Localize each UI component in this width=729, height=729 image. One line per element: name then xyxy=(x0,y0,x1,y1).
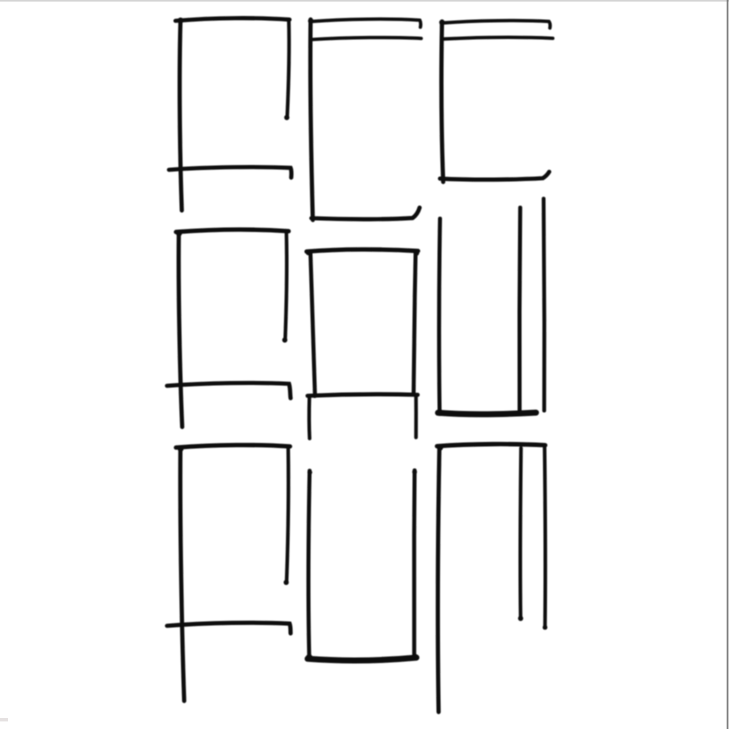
scan-edge-artifacts xyxy=(0,0,729,729)
ink-blob xyxy=(306,249,312,255)
ink-blob xyxy=(284,115,289,120)
ink-blob xyxy=(178,18,184,24)
glyph-f-row1 xyxy=(169,18,291,211)
ink-stroke xyxy=(311,208,419,220)
glyph-m-row3 xyxy=(437,444,548,712)
ink-stroke xyxy=(176,445,290,448)
ink-blob xyxy=(543,625,548,630)
ink-stroke xyxy=(443,37,553,39)
glyph-u-row3 xyxy=(306,470,419,662)
ink-blob xyxy=(437,444,443,450)
ink-stroke xyxy=(307,249,418,251)
ink-layer xyxy=(167,18,553,713)
ink-stroke xyxy=(414,252,416,394)
bottom-left-smudge xyxy=(0,718,8,721)
ink-stroke xyxy=(287,448,289,581)
ink-stroke xyxy=(180,448,184,701)
ink-blob xyxy=(437,409,444,416)
ink-stroke xyxy=(176,18,290,21)
ink-stroke xyxy=(441,22,443,183)
ink-stroke xyxy=(308,658,417,661)
ink-stroke xyxy=(287,20,289,117)
ink-stroke xyxy=(519,208,520,413)
ink-blob xyxy=(282,337,287,342)
ink-blob xyxy=(517,410,523,416)
ink-stroke xyxy=(180,20,182,211)
ink-stroke xyxy=(308,394,418,396)
ink-blob xyxy=(412,654,418,660)
ink-stroke xyxy=(544,199,545,411)
ink-stroke xyxy=(167,623,291,634)
glyph-e2-row1 xyxy=(439,20,553,182)
ink-stroke xyxy=(176,230,289,232)
ink-stroke xyxy=(442,21,550,28)
ink-stroke xyxy=(285,233,286,339)
hand-lettering-drawing xyxy=(0,0,729,729)
ink-stroke xyxy=(310,251,315,396)
ink-stroke xyxy=(310,19,421,27)
paper-canvas xyxy=(0,0,729,729)
ink-stroke xyxy=(440,172,549,180)
glyph-f-row2 xyxy=(167,230,291,427)
ink-stroke xyxy=(437,444,545,446)
ink-blob xyxy=(414,250,420,256)
glyph-w-row2 xyxy=(437,199,545,416)
ink-stroke xyxy=(439,219,440,412)
ink-blob xyxy=(518,616,523,621)
glyph-a-row2 xyxy=(306,249,420,438)
glyph-e1-row1 xyxy=(308,18,421,220)
glyph-f-row3 xyxy=(167,445,291,701)
ink-blob xyxy=(308,18,314,24)
top-line xyxy=(0,0,729,2)
ink-blob xyxy=(306,654,313,661)
ink-stroke xyxy=(545,447,546,626)
ink-stroke xyxy=(169,167,291,178)
ink-blob xyxy=(176,230,182,236)
ink-stroke xyxy=(310,20,312,221)
ink-stroke xyxy=(179,233,183,427)
ink-blob xyxy=(412,470,417,475)
ink-stroke xyxy=(438,447,439,712)
ink-blob xyxy=(284,580,289,585)
right-line xyxy=(727,0,729,729)
ink-blob xyxy=(439,20,445,26)
ink-stroke xyxy=(311,38,421,40)
ink-blob xyxy=(178,446,184,452)
ink-stroke xyxy=(414,470,415,656)
ink-stroke xyxy=(520,448,521,617)
ink-blob xyxy=(307,470,312,475)
ink-stroke xyxy=(308,471,309,656)
ink-stroke xyxy=(167,383,291,398)
